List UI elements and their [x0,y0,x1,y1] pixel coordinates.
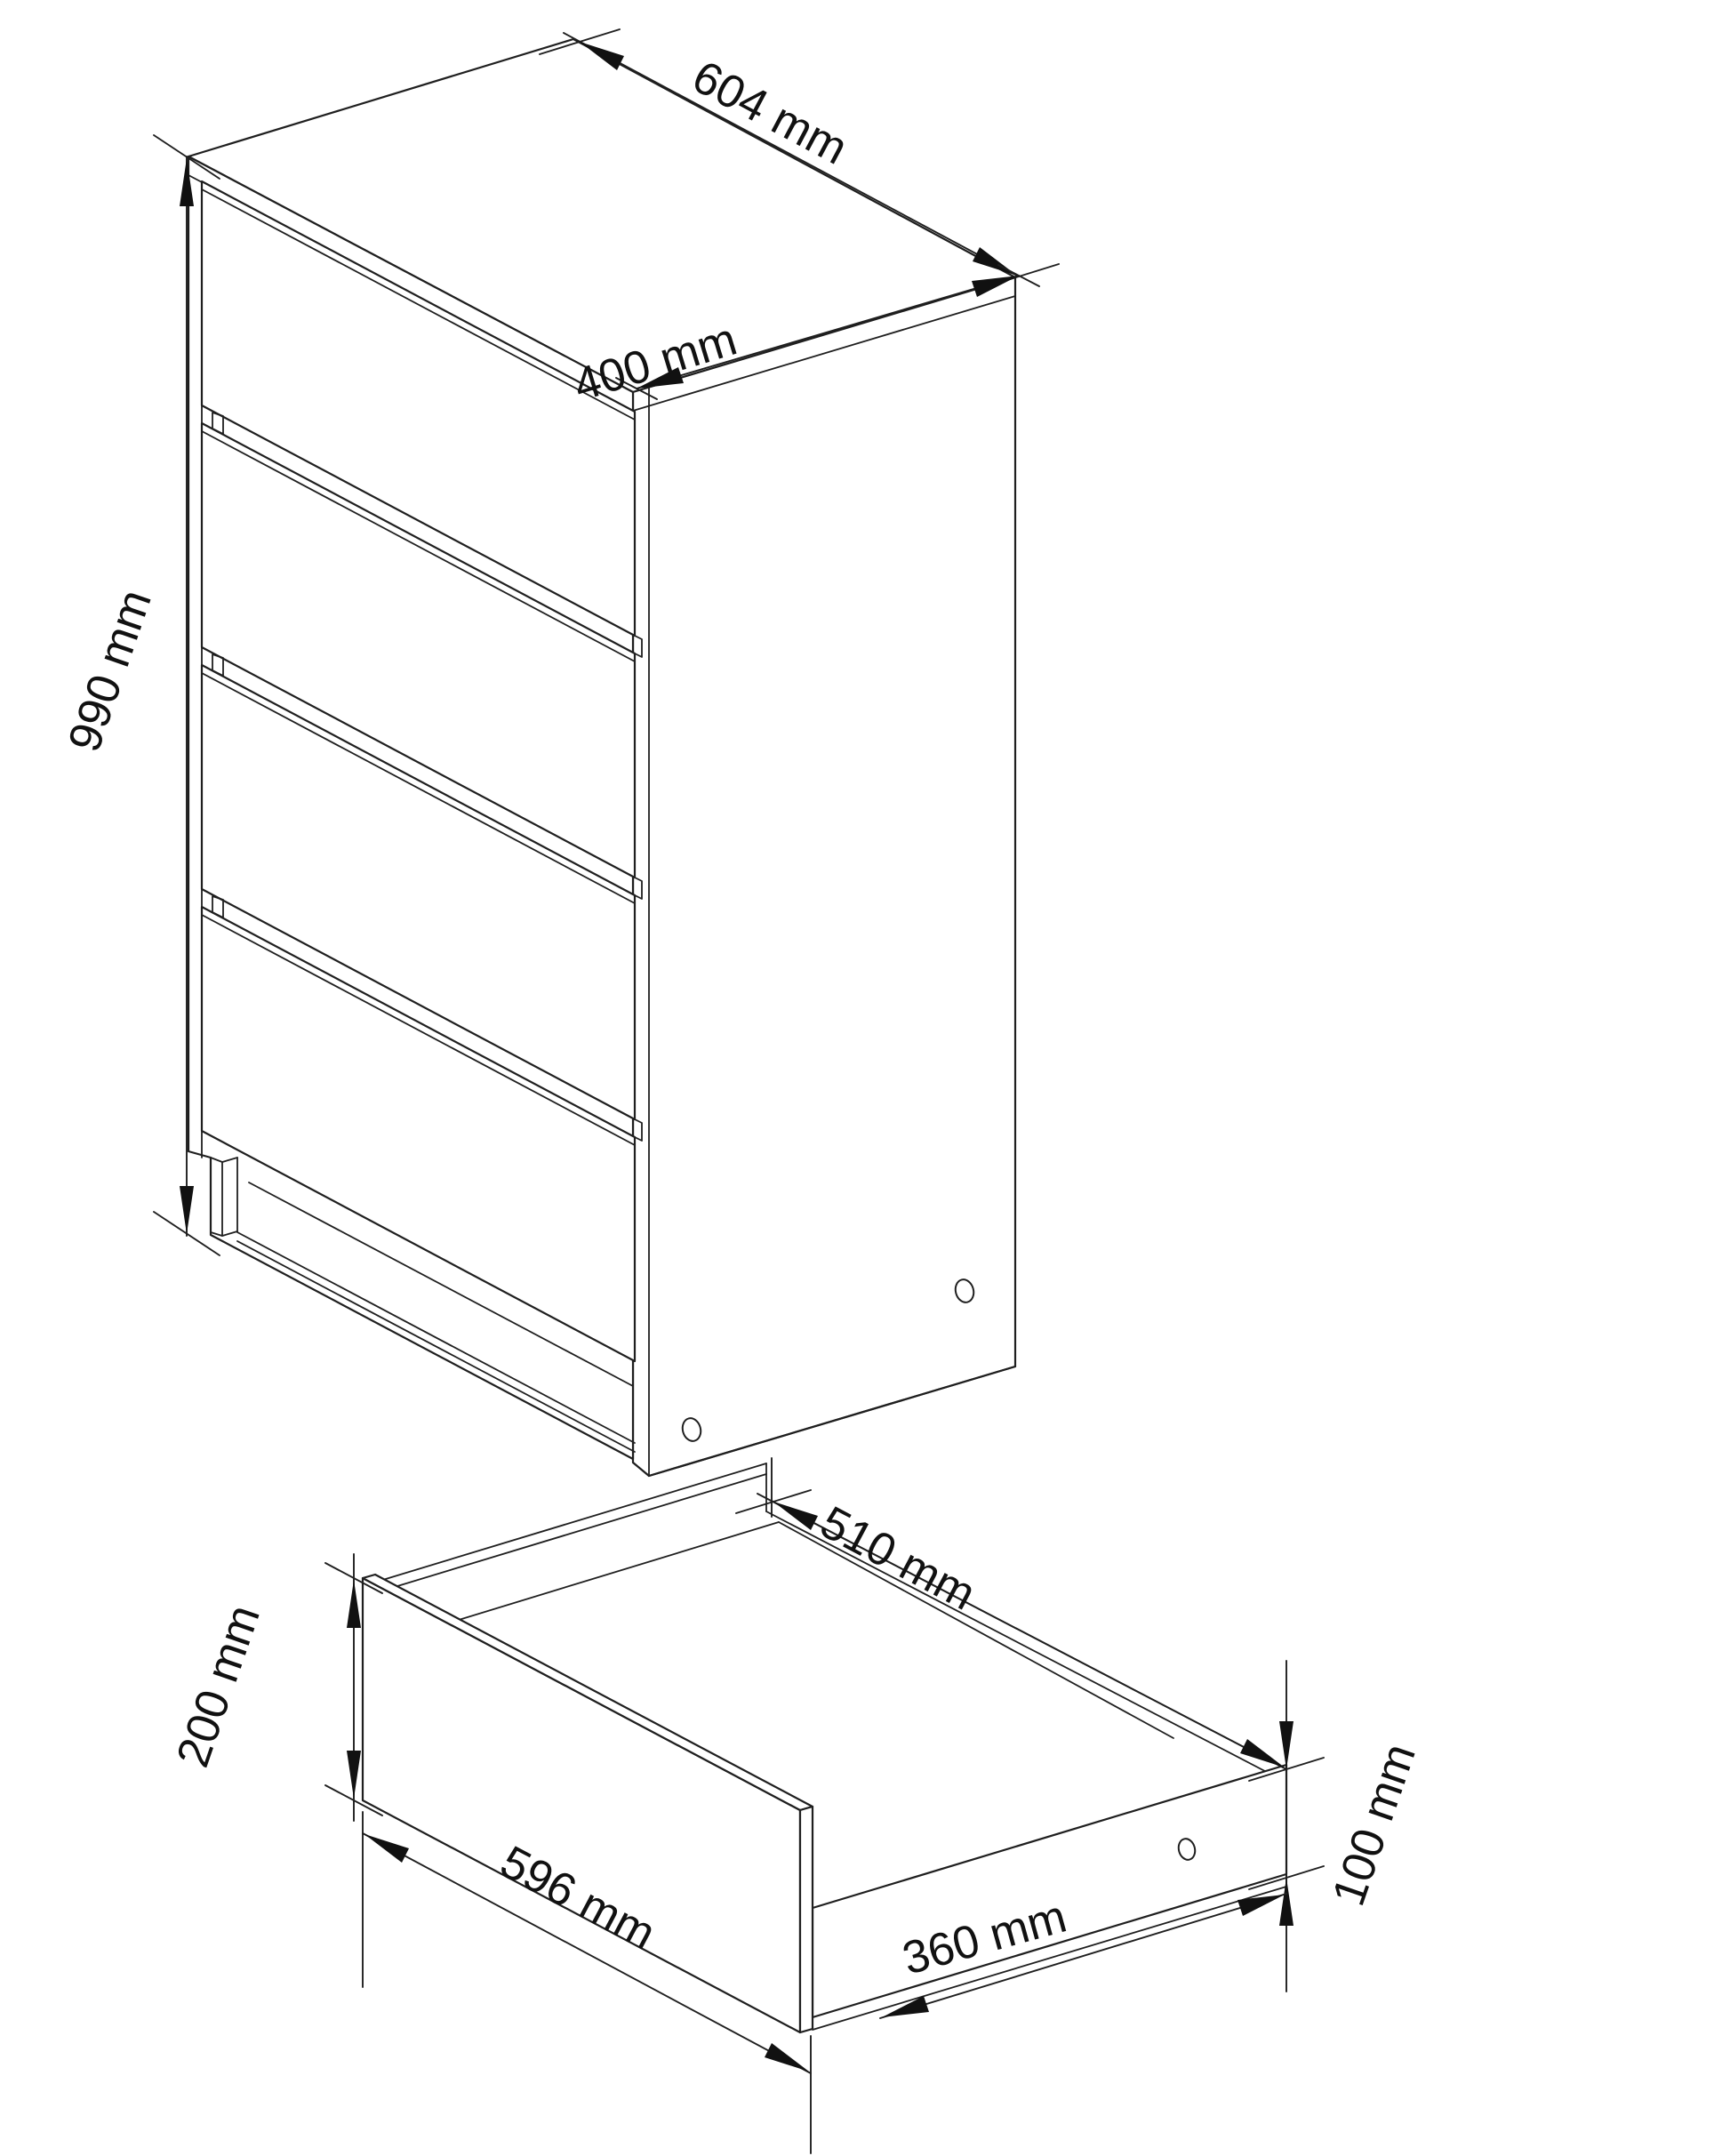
drawer-front-panel-side-strip [800,1807,813,2032]
drawer-left-side-top-edge [377,1463,766,1582]
drawer-front-panel [363,1578,800,2032]
side-height-arrow-bottom [1279,1878,1293,1926]
front-width-arrow-left [364,1834,409,1863]
cabinet-view: 990 mm 604 mm 400 mm [59,29,1059,1476]
front-width-arrow-right [765,2043,809,2072]
drawer-floor-left-edge [418,1522,779,1632]
drawing-sheet: 990 mm 604 mm 400 mm [0,0,1730,2156]
drawer-side-height-label: 100 mm [1323,1737,1426,1912]
inner-depth-arrow-right [1240,1739,1285,1767]
drawer-left-side-thickness [377,1474,766,1592]
drawer-front-height-label: 200 mm [167,1599,270,1773]
cabinet-height-label: 990 mm [59,583,162,757]
drawer-side-panel [813,1765,1286,2017]
front-height-arrow-bottom [347,1751,361,1799]
front-height-arrow-top [347,1580,361,1628]
side-height-arrow-top [1279,1721,1293,1769]
drawer-inner-depth-label: 510 mm [812,1496,983,1620]
height-arrow-bottom [180,1186,194,1234]
bottom-depth-arrow-right [1237,1895,1285,1916]
inner-depth-dimension: 510 mm [736,1458,1324,1781]
drawer-view: 200 mm 596 mm 510 mm [167,1458,1426,2153]
front-height-dimension: 200 mm [167,1554,382,1821]
technical-drawing-canvas: 990 mm 604 mm 400 mm [0,0,1730,2156]
